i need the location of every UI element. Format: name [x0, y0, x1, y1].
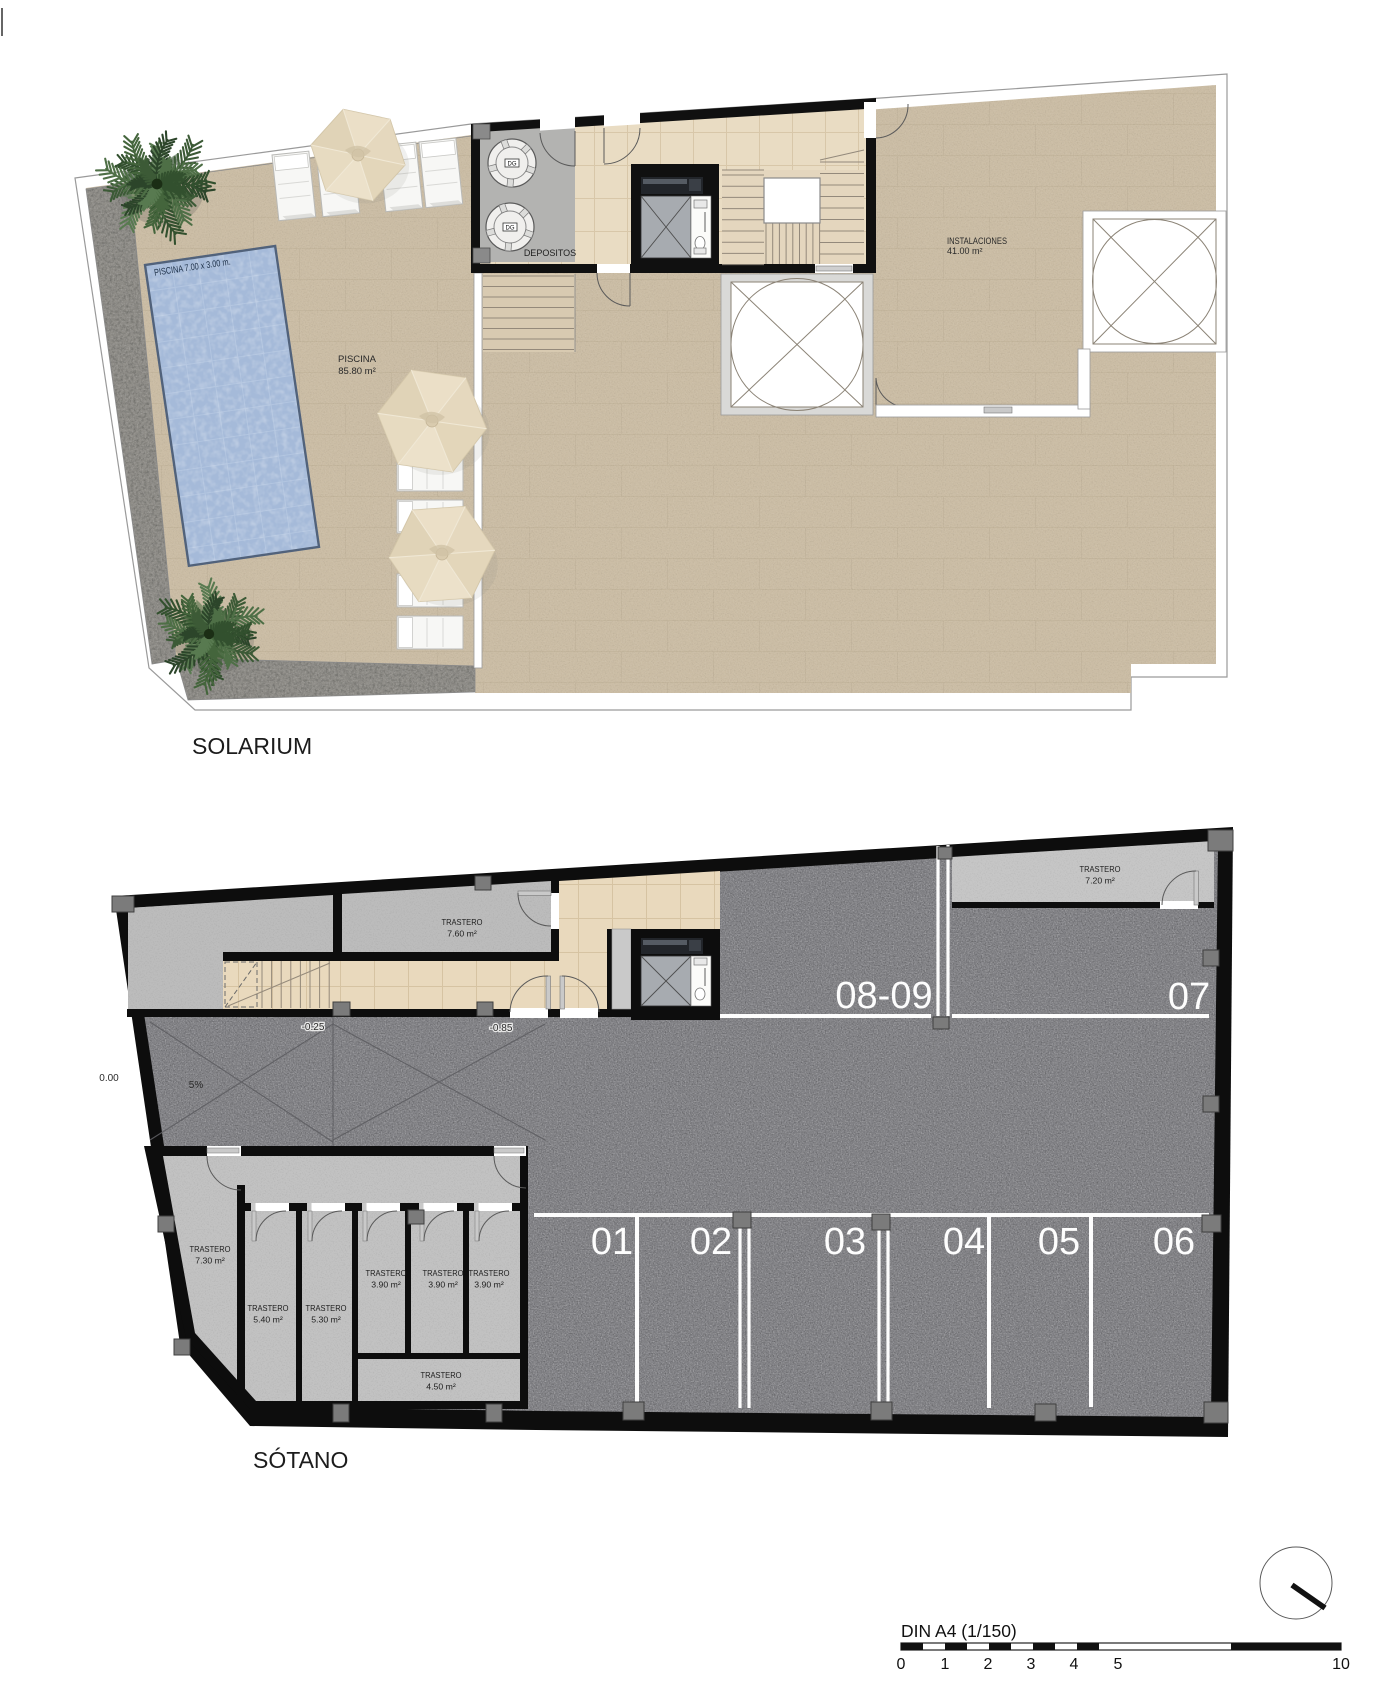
svg-text:03: 03	[824, 1221, 866, 1263]
svg-text:TRASTERO: TRASTERO	[469, 1268, 510, 1278]
svg-text:02: 02	[690, 1221, 732, 1263]
svg-text:1: 1	[941, 1656, 950, 1673]
svg-text:10: 10	[1332, 1656, 1350, 1673]
svg-text:SÓTANO: SÓTANO	[253, 1447, 348, 1473]
svg-text:3: 3	[1027, 1656, 1036, 1673]
svg-text:05: 05	[1038, 1221, 1080, 1263]
svg-text:-0.25: -0.25	[302, 1022, 325, 1033]
svg-text:5.40 m²: 5.40 m²	[253, 1315, 283, 1325]
svg-text:INSTALACIONES: INSTALACIONES	[947, 236, 1007, 246]
svg-text:5: 5	[1114, 1656, 1123, 1673]
svg-text:08-09: 08-09	[835, 975, 932, 1017]
svg-text:85.80 m²: 85.80 m²	[338, 366, 376, 377]
svg-text:41.00 m²: 41.00 m²	[947, 246, 983, 256]
svg-text:DIN A4 (1/150): DIN A4 (1/150)	[901, 1621, 1017, 1641]
svg-text:TRASTERO: TRASTERO	[1080, 864, 1121, 874]
svg-text:SOLARIUM: SOLARIUM	[192, 733, 312, 759]
svg-text:5%: 5%	[189, 1080, 204, 1091]
svg-text:DG: DG	[508, 162, 517, 168]
svg-text:3.90 m²: 3.90 m²	[428, 1280, 458, 1290]
svg-text:TRASTERO: TRASTERO	[442, 917, 483, 927]
svg-text:0: 0	[897, 1656, 906, 1673]
svg-text:TRASTERO: TRASTERO	[248, 1303, 289, 1313]
svg-text:TRASTERO: TRASTERO	[366, 1268, 407, 1278]
svg-text:7.30 m²: 7.30 m²	[195, 1256, 225, 1266]
svg-text:4.50 m²: 4.50 m²	[426, 1382, 456, 1392]
svg-text:3.90 m²: 3.90 m²	[474, 1280, 504, 1290]
svg-text:TRASTERO: TRASTERO	[190, 1244, 231, 1254]
svg-text:DG: DG	[506, 226, 515, 232]
svg-text:TRASTERO: TRASTERO	[306, 1303, 347, 1313]
svg-text:7.20 m²: 7.20 m²	[1085, 876, 1115, 886]
svg-text:TRASTERO: TRASTERO	[423, 1268, 464, 1278]
svg-text:07: 07	[1168, 976, 1210, 1018]
svg-text:7.60 m²: 7.60 m²	[447, 929, 477, 939]
svg-text:2: 2	[984, 1656, 993, 1673]
svg-text:-0.85: -0.85	[490, 1023, 513, 1034]
svg-text:3.90 m²: 3.90 m²	[371, 1280, 401, 1290]
svg-text:5.30 m²: 5.30 m²	[311, 1315, 341, 1325]
svg-text:06: 06	[1153, 1221, 1195, 1263]
svg-text:DEPOSITOS: DEPOSITOS	[524, 248, 576, 258]
svg-text:04: 04	[943, 1221, 985, 1263]
svg-text:0.00: 0.00	[99, 1073, 119, 1084]
svg-text:4: 4	[1070, 1656, 1079, 1673]
svg-text:PISCINA: PISCINA	[338, 354, 377, 365]
svg-text:TRASTERO: TRASTERO	[421, 1370, 462, 1380]
svg-text:01: 01	[591, 1221, 633, 1263]
